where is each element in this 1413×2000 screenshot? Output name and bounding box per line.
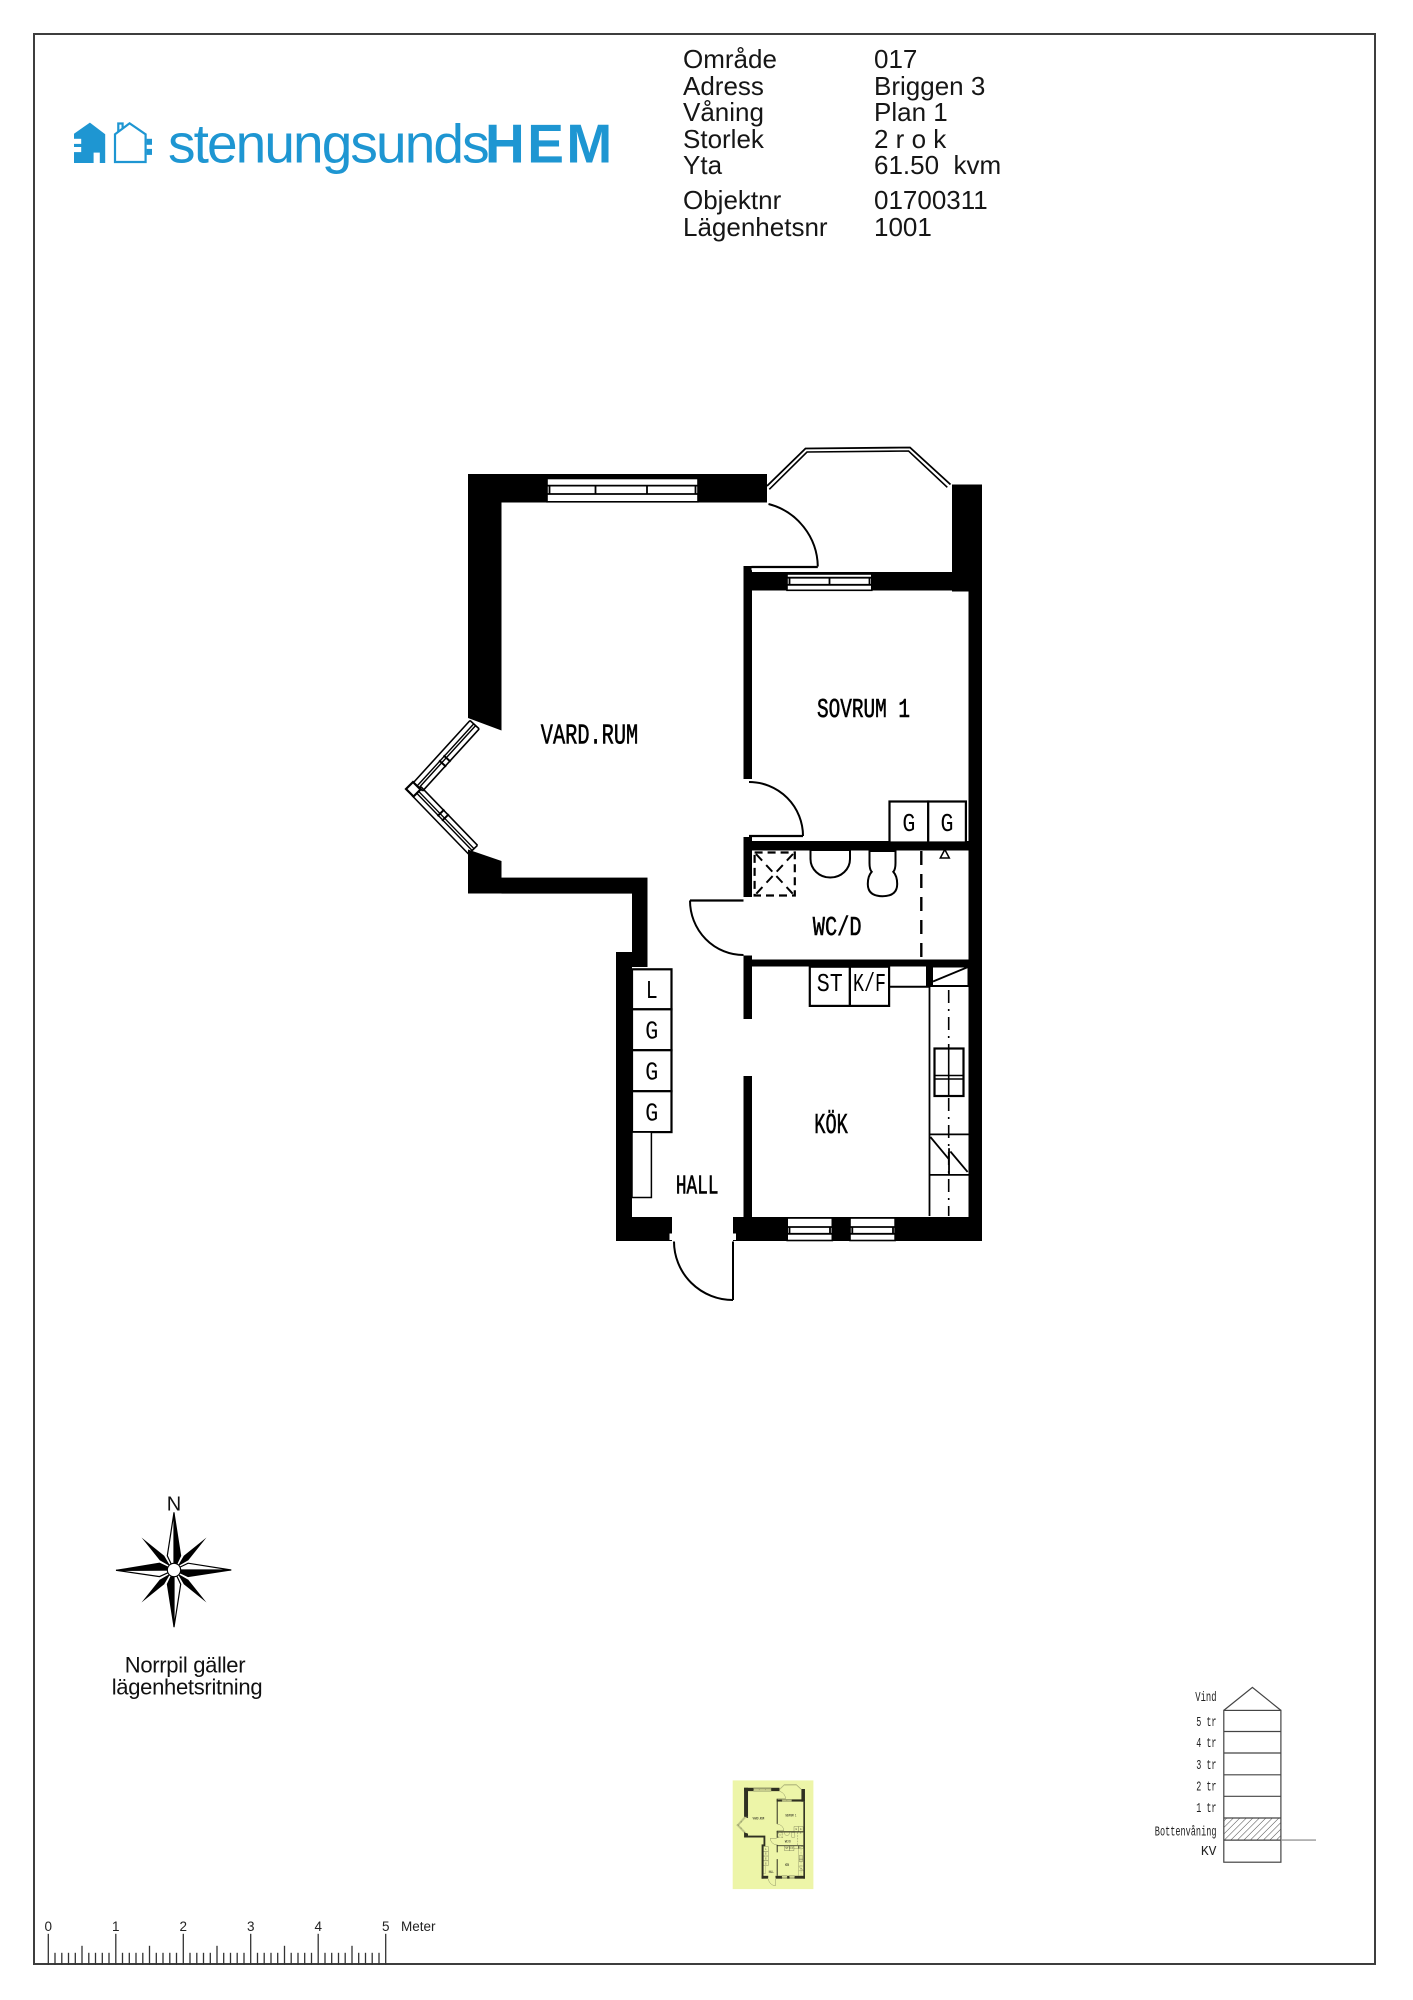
svg-text:Vind: Vind <box>1195 1690 1216 1706</box>
svg-text:3 tr: 3 tr <box>1196 1758 1216 1774</box>
svg-text:Norrpil gäller: Norrpil gäller <box>125 1652 246 1677</box>
svg-text:1 tr: 1 tr <box>1196 1801 1216 1817</box>
svg-text:Bottenvåning: Bottenvåning <box>1155 1825 1217 1841</box>
svg-text:lägenhetsritning: lägenhetsritning <box>112 1675 263 1700</box>
svg-text:5: 5 <box>382 1919 390 1934</box>
svg-text:N: N <box>167 1494 181 1516</box>
svg-text:5 tr: 5 tr <box>1196 1715 1216 1731</box>
svg-text:2 tr: 2 tr <box>1196 1779 1216 1795</box>
svg-text:KV: KV <box>1201 1844 1217 1860</box>
svg-text:0: 0 <box>45 1919 53 1934</box>
svg-text:3: 3 <box>247 1919 255 1934</box>
svg-text:2: 2 <box>180 1919 188 1934</box>
svg-text:4: 4 <box>314 1919 322 1934</box>
svg-text:1: 1 <box>112 1919 120 1934</box>
svg-text:4 tr: 4 tr <box>1196 1736 1216 1752</box>
svg-text:Meter: Meter <box>401 1919 436 1934</box>
